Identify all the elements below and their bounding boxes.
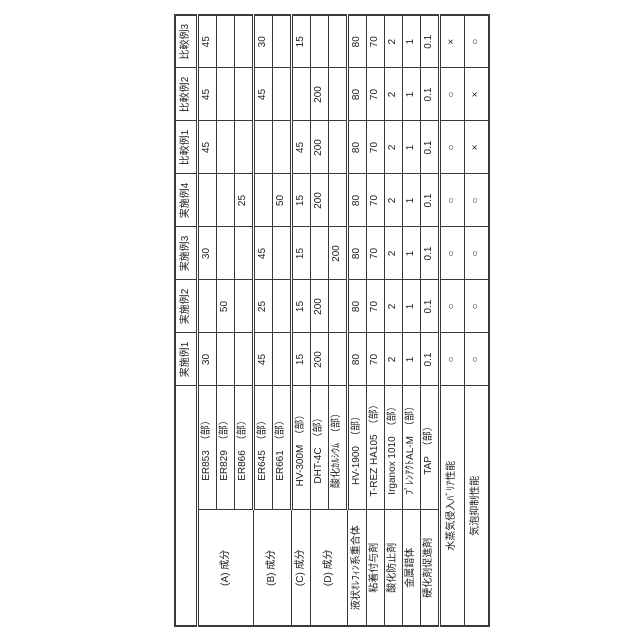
value-cell: 1 bbox=[403, 333, 421, 386]
value-cell bbox=[235, 121, 254, 174]
value-cell: 2 bbox=[385, 121, 403, 174]
value-cell: 15 bbox=[292, 280, 311, 333]
value-cell: 200 bbox=[311, 68, 329, 121]
value-cell: 30 bbox=[198, 227, 217, 280]
table-row: (D) 成分DHT-4C （部）200200200200200 bbox=[311, 15, 329, 626]
result-cell: ○ bbox=[465, 227, 490, 280]
result-cell: ○ bbox=[440, 280, 465, 333]
value-cell bbox=[217, 333, 235, 386]
value-cell bbox=[198, 280, 217, 333]
item-label-cell: ER661 （部） bbox=[273, 386, 292, 510]
composition-table: 実施例1実施例2実施例3実施例4比較例1比較例2比較例3(A) 成分ER853 … bbox=[174, 14, 490, 627]
value-cell: 2 bbox=[385, 280, 403, 333]
value-cell bbox=[217, 15, 235, 68]
value-cell bbox=[217, 174, 235, 227]
value-cell: 2 bbox=[385, 227, 403, 280]
value-cell bbox=[217, 68, 235, 121]
value-cell: 70 bbox=[367, 68, 385, 121]
group-label-cell: 金属錯体 bbox=[403, 510, 421, 626]
value-cell: 200 bbox=[311, 333, 329, 386]
value-cell: 15 bbox=[292, 174, 311, 227]
value-cell: 15 bbox=[292, 333, 311, 386]
value-cell: 80 bbox=[348, 333, 367, 386]
table-row: 液状ｵﾚﾌｨﾝ系重合体HV-1900 （部）80808080808080 bbox=[348, 15, 367, 626]
result-cell: ○ bbox=[440, 68, 465, 121]
table-row: (B) 成分ER645 （部）4525454530 bbox=[254, 15, 273, 626]
value-cell: 25 bbox=[254, 280, 273, 333]
value-cell: 50 bbox=[217, 280, 235, 333]
value-cell bbox=[235, 68, 254, 121]
header-row: 実施例1実施例2実施例3実施例4比較例1比較例2比較例3 bbox=[175, 15, 198, 626]
result-cell: ○ bbox=[465, 15, 490, 68]
value-cell bbox=[329, 333, 348, 386]
column-header: 実施例3 bbox=[175, 227, 198, 280]
value-cell bbox=[273, 121, 292, 174]
value-cell: 70 bbox=[367, 227, 385, 280]
value-cell bbox=[329, 15, 348, 68]
value-cell: 0.1 bbox=[421, 121, 440, 174]
value-cell: 1 bbox=[403, 280, 421, 333]
value-cell bbox=[329, 174, 348, 227]
result-cell: × bbox=[465, 121, 490, 174]
value-cell bbox=[235, 227, 254, 280]
group-label-cell: 粘着付与剤 bbox=[367, 510, 385, 626]
value-cell: 80 bbox=[348, 174, 367, 227]
document-page: 実施例1実施例2実施例3実施例4比較例1比較例2比較例3(A) 成分ER853 … bbox=[0, 0, 640, 640]
value-cell: 45 bbox=[198, 68, 217, 121]
value-cell bbox=[311, 15, 329, 68]
value-cell: 1 bbox=[403, 174, 421, 227]
group-label-cell: (B) 成分 bbox=[254, 510, 292, 626]
group-label-cell: (A) 成分 bbox=[198, 510, 254, 626]
value-cell bbox=[273, 333, 292, 386]
item-label-cell: HV-300M （部） bbox=[292, 386, 311, 510]
value-cell bbox=[273, 68, 292, 121]
value-cell bbox=[329, 68, 348, 121]
column-header: 比較例1 bbox=[175, 121, 198, 174]
column-header: 実施例1 bbox=[175, 333, 198, 386]
value-cell bbox=[217, 121, 235, 174]
group-label-cell: 硬化剤促進剤 bbox=[421, 510, 440, 626]
result-cell: ○ bbox=[465, 174, 490, 227]
performance-label-cell: 気泡抑制性能 bbox=[465, 386, 490, 626]
value-cell bbox=[311, 227, 329, 280]
item-label-cell: 酸化ｶﾙｼｳﾑ （部） bbox=[329, 386, 348, 510]
result-cell: ○ bbox=[440, 121, 465, 174]
item-label-cell: ER829 （部） bbox=[217, 386, 235, 510]
value-cell: 2 bbox=[385, 68, 403, 121]
group-label-cell: (D) 成分 bbox=[311, 510, 348, 626]
value-cell: 45 bbox=[254, 68, 273, 121]
group-label-cell: 酸化防止剤 bbox=[385, 510, 403, 626]
result-cell: ○ bbox=[440, 333, 465, 386]
result-cell: ○ bbox=[440, 227, 465, 280]
item-label-cell: ﾌﾟﾚﾝｱｸﾄAL-M （部） bbox=[403, 386, 421, 510]
value-cell: 70 bbox=[367, 280, 385, 333]
value-cell: 2 bbox=[385, 333, 403, 386]
performance-row: 水蒸気侵入ﾊﾞﾘｱ性能○○○○○○× bbox=[440, 15, 465, 626]
value-cell: 70 bbox=[367, 15, 385, 68]
column-header: 比較例3 bbox=[175, 15, 198, 68]
value-cell: 2 bbox=[385, 15, 403, 68]
value-cell: 1 bbox=[403, 121, 421, 174]
value-cell: 45 bbox=[254, 333, 273, 386]
table-row: 粘着付与剤T-REZ HA105 （部）70707070707070 bbox=[367, 15, 385, 626]
value-cell: 70 bbox=[367, 333, 385, 386]
value-cell bbox=[217, 227, 235, 280]
value-cell: 80 bbox=[348, 227, 367, 280]
table-row: 金属錯体ﾌﾟﾚﾝｱｸﾄAL-M （部）1111111 bbox=[403, 15, 421, 626]
value-cell: 0.1 bbox=[421, 280, 440, 333]
item-label-cell: T-REZ HA105 （部） bbox=[367, 386, 385, 510]
value-cell: 200 bbox=[311, 280, 329, 333]
result-cell: × bbox=[440, 15, 465, 68]
performance-row: 気泡抑制性能○○○○××○ bbox=[465, 15, 490, 626]
value-cell: 200 bbox=[311, 174, 329, 227]
value-cell: 0.1 bbox=[421, 68, 440, 121]
value-cell: 15 bbox=[292, 15, 311, 68]
value-cell: 45 bbox=[254, 227, 273, 280]
value-cell: 0.1 bbox=[421, 15, 440, 68]
column-header: 実施例4 bbox=[175, 174, 198, 227]
value-cell: 80 bbox=[348, 121, 367, 174]
corner-cell bbox=[175, 386, 198, 626]
value-cell: 45 bbox=[198, 15, 217, 68]
result-cell: ○ bbox=[465, 333, 490, 386]
value-cell: 0.1 bbox=[421, 333, 440, 386]
item-label-cell: ER645 （部） bbox=[254, 386, 273, 510]
value-cell bbox=[254, 174, 273, 227]
value-cell: 45 bbox=[198, 121, 217, 174]
value-cell: 1 bbox=[403, 68, 421, 121]
value-cell bbox=[254, 121, 273, 174]
value-cell: 15 bbox=[292, 227, 311, 280]
value-cell bbox=[235, 333, 254, 386]
value-cell bbox=[235, 280, 254, 333]
value-cell bbox=[235, 15, 254, 68]
value-cell: 200 bbox=[329, 227, 348, 280]
rotated-table-container: 実施例1実施例2実施例3実施例4比較例1比較例2比較例3(A) 成分ER853 … bbox=[174, 14, 479, 627]
value-cell: 70 bbox=[367, 121, 385, 174]
value-cell bbox=[329, 121, 348, 174]
value-cell bbox=[273, 280, 292, 333]
table-row: (C) 成分HV-300M （部）151515154515 bbox=[292, 15, 311, 626]
value-cell: 80 bbox=[348, 68, 367, 121]
value-cell bbox=[273, 227, 292, 280]
value-cell: 45 bbox=[292, 121, 311, 174]
value-cell: 0.1 bbox=[421, 174, 440, 227]
result-cell: × bbox=[465, 68, 490, 121]
value-cell: 80 bbox=[348, 280, 367, 333]
value-cell bbox=[329, 280, 348, 333]
value-cell: 2 bbox=[385, 174, 403, 227]
value-cell bbox=[273, 15, 292, 68]
table-row: (A) 成分ER853 （部）3030454545 bbox=[198, 15, 217, 626]
value-cell bbox=[198, 174, 217, 227]
value-cell: 200 bbox=[311, 121, 329, 174]
value-cell: 30 bbox=[198, 333, 217, 386]
value-cell: 1 bbox=[403, 227, 421, 280]
table-row: 酸化防止剤Irganox 1010 （部）2222222 bbox=[385, 15, 403, 626]
value-cell: 70 bbox=[367, 174, 385, 227]
value-cell bbox=[292, 68, 311, 121]
result-cell: ○ bbox=[440, 174, 465, 227]
table-row: 硬化剤促進剤TAP （部）0.10.10.10.10.10.10.1 bbox=[421, 15, 440, 626]
item-label-cell: DHT-4C （部） bbox=[311, 386, 329, 510]
value-cell: 30 bbox=[254, 15, 273, 68]
value-cell: 1 bbox=[403, 15, 421, 68]
result-cell: ○ bbox=[465, 280, 490, 333]
item-label-cell: HV-1900 （部） bbox=[348, 386, 367, 510]
value-cell: 0.1 bbox=[421, 227, 440, 280]
item-label-cell: TAP （部） bbox=[421, 386, 440, 510]
group-label-cell: 液状ｵﾚﾌｨﾝ系重合体 bbox=[348, 510, 367, 626]
value-cell: 25 bbox=[235, 174, 254, 227]
column-header: 比較例2 bbox=[175, 68, 198, 121]
column-header: 実施例2 bbox=[175, 280, 198, 333]
performance-label-cell: 水蒸気侵入ﾊﾞﾘｱ性能 bbox=[440, 386, 465, 626]
value-cell: 80 bbox=[348, 15, 367, 68]
item-label-cell: Irganox 1010 （部） bbox=[385, 386, 403, 510]
item-label-cell: ER853 （部） bbox=[198, 386, 217, 510]
item-label-cell: ER866 （部） bbox=[235, 386, 254, 510]
group-label-cell: (C) 成分 bbox=[292, 510, 311, 626]
value-cell: 50 bbox=[273, 174, 292, 227]
